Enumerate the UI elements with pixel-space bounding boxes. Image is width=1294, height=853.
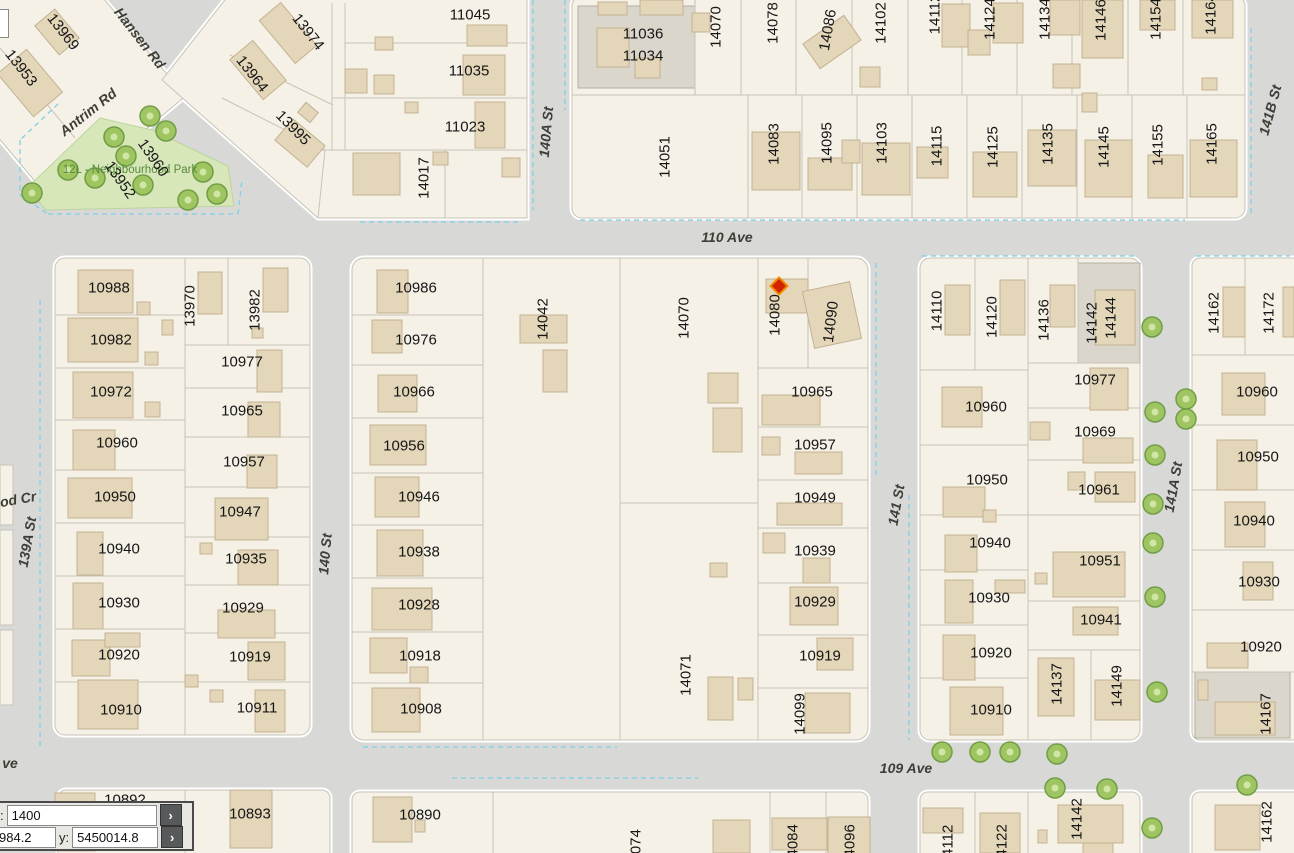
parcel-label: 14120 — [984, 296, 1001, 338]
building — [1082, 93, 1097, 112]
parcel-label: 10919 — [799, 648, 841, 665]
tree-icon — [147, 113, 154, 120]
parcel-label: 14070 — [676, 297, 693, 339]
building — [1030, 422, 1050, 440]
parcel-label: 11023 — [445, 119, 486, 136]
parcel-label: 10960 — [965, 399, 1007, 416]
building — [1050, 285, 1075, 327]
parcel-label: 11036 — [623, 26, 664, 43]
parcel-label: 10956 — [383, 438, 425, 455]
parcel-label: 10918 — [399, 648, 441, 665]
building — [945, 285, 970, 335]
parcel-label: 10965 — [221, 403, 263, 420]
parcel-label: 10946 — [398, 489, 440, 506]
parcel-label: 14103 — [874, 122, 891, 164]
parcel-label: 10935 — [225, 551, 267, 568]
street-label: 141 St — [885, 482, 908, 527]
tree-icon — [185, 197, 192, 204]
street-label: 141B St — [1256, 82, 1285, 137]
parcel-label: 10920 — [98, 647, 140, 664]
parcel-label: 10938 — [398, 544, 440, 561]
parcel-label: 10957 — [794, 437, 836, 454]
parcel-label: 10961 — [1078, 482, 1120, 499]
tree-icon — [939, 749, 946, 756]
tree-icon — [1149, 324, 1156, 331]
building — [433, 152, 448, 165]
parcel-label: 14095 — [819, 122, 836, 164]
building — [708, 373, 738, 403]
parcel-label: 10957 — [223, 454, 265, 471]
parcel-label: 14112 — [940, 825, 957, 853]
tree-icon — [1150, 501, 1157, 508]
parcel-label: 14145 — [1096, 126, 1113, 168]
building — [598, 2, 627, 15]
building — [543, 350, 567, 392]
scale-go-button[interactable]: › — [160, 804, 182, 826]
partial-ui-box — [0, 9, 9, 38]
parcel-label: 14142 — [1069, 798, 1086, 840]
edge-parcel — [0, 530, 13, 625]
building — [943, 487, 985, 517]
building — [375, 37, 393, 50]
parcel-label: 14017 — [416, 157, 433, 199]
parcel-label: 10950 — [966, 472, 1008, 489]
tree-icon — [1149, 825, 1156, 832]
tree-icon — [140, 182, 147, 189]
edge-parcel — [0, 630, 13, 705]
parcel-label: 14154 — [1148, 0, 1165, 40]
parcel-label: 10941 — [1080, 612, 1122, 629]
parcel-label: 10929 — [222, 600, 264, 617]
building — [763, 533, 785, 553]
street-label: 141A St — [1161, 459, 1186, 513]
parcel-label: 14155 — [1150, 124, 1167, 166]
tree-icon — [1152, 594, 1159, 601]
parcel-label: 10929 — [794, 594, 836, 611]
parcel-label: 10910 — [970, 702, 1012, 719]
parcel-label: 10930 — [98, 595, 140, 612]
parcel-label: 10977 — [1074, 372, 1116, 389]
parcel-label: 14137 — [1049, 663, 1066, 705]
building — [405, 102, 418, 113]
parcel-label: 13970 — [182, 285, 199, 327]
building — [137, 302, 150, 315]
scale-input[interactable] — [7, 805, 157, 826]
parcel-label: 14071 — [678, 654, 695, 696]
parcel-label: 11034 — [623, 48, 664, 65]
tree-icon — [1150, 540, 1157, 547]
street-label: 140A St — [536, 105, 556, 158]
parcel-label: 14124 — [982, 0, 999, 40]
parcel-label: 10966 — [393, 384, 435, 401]
building — [1283, 287, 1294, 337]
parcel-label: 10951 — [1079, 553, 1121, 570]
building — [1198, 680, 1208, 700]
scale-label: : — [0, 808, 4, 823]
building — [162, 320, 173, 335]
street-label: 139A St — [15, 514, 40, 568]
building — [708, 677, 733, 720]
parcel-label: 14172 — [1261, 292, 1278, 334]
parcel-label: 10965 — [791, 384, 833, 401]
building — [842, 140, 860, 163]
parcel-label: 14162 — [1206, 292, 1223, 334]
building — [1215, 805, 1260, 850]
coordinate-panel: : › y: › — [0, 801, 194, 851]
scale-row: : › — [0, 804, 190, 826]
parcel-label: 14149 — [1109, 665, 1126, 707]
parcel-label: 10939 — [794, 543, 836, 560]
building — [640, 0, 683, 15]
tree-icon — [1152, 409, 1159, 416]
building — [198, 272, 222, 314]
building — [210, 690, 223, 702]
tree-icon — [977, 749, 984, 756]
parcel-label: 10947 — [219, 504, 261, 521]
building — [345, 69, 367, 93]
parcel-label: 14125 — [985, 126, 1002, 168]
parcel-label: 14080 — [767, 294, 784, 336]
parcel-label: 14042 — [535, 298, 552, 340]
parcel-label: 14099 — [792, 693, 809, 735]
tree-icon — [111, 134, 118, 141]
parcel-label: 14070 — [708, 6, 725, 48]
building — [795, 452, 842, 474]
building — [713, 820, 750, 853]
parcel-label: 14110 — [929, 291, 946, 332]
parcel-label: 14146 — [1093, 0, 1110, 41]
parcel-map[interactable]: Hansen RdAntrim Rd110 Ave109 Aveveod Cr1… — [0, 0, 1294, 853]
parcel-label: 10950 — [94, 489, 136, 506]
building — [1050, 0, 1080, 35]
parcel-label: 10911 — [237, 700, 278, 717]
x-coordinate-input[interactable] — [0, 827, 56, 848]
parcel-label: 14122 — [994, 824, 1011, 853]
building — [1000, 280, 1025, 335]
building — [353, 153, 400, 195]
parcel-label: 10920 — [970, 645, 1012, 662]
building — [762, 437, 780, 455]
parcel-label: 14112 — [927, 0, 944, 34]
park-label: 12L - Neighbourhood Park — [63, 164, 198, 176]
parcel-label: 10920 — [1240, 639, 1282, 656]
building — [467, 25, 507, 46]
parcel-label: 14115 — [929, 126, 946, 167]
parcel-label: 10969 — [1074, 424, 1116, 441]
parcel-label: 10893 — [229, 806, 271, 823]
building — [1223, 287, 1245, 337]
building — [145, 352, 158, 365]
parcel-label: 10930 — [1238, 574, 1280, 591]
tree-icon — [1007, 749, 1014, 756]
parcel-label: 10928 — [398, 597, 440, 614]
building — [502, 158, 520, 177]
building — [942, 4, 970, 47]
tree-icon — [29, 190, 36, 197]
tree-icon — [1183, 396, 1190, 403]
building — [713, 408, 742, 452]
parcel-label: 10940 — [98, 541, 140, 558]
building — [1038, 830, 1047, 843]
map-canvas[interactable]: Hansen RdAntrim Rd110 Ave109 Aveveod Cr1… — [0, 0, 1294, 853]
parcel-label: 14144 — [1103, 297, 1120, 339]
parcel-label: 14051 — [657, 136, 674, 178]
tree-icon — [1104, 786, 1111, 793]
building — [145, 402, 160, 417]
tree-icon — [1152, 452, 1159, 459]
building — [860, 67, 880, 87]
tree-icon — [200, 169, 207, 176]
parcel-label: 10976 — [395, 332, 437, 349]
coordinate-go-button[interactable]: › — [161, 826, 183, 848]
parcel-label: 13982 — [247, 289, 264, 331]
parcel-label: 14134 — [1037, 0, 1054, 40]
parcel-label: 10960 — [1236, 384, 1278, 401]
building — [1083, 438, 1133, 463]
parcel-label: 14135 — [1040, 123, 1057, 165]
tree-icon — [1244, 782, 1251, 789]
coordinate-row: y: › — [0, 826, 190, 848]
parcel-label: 14096 — [842, 824, 859, 853]
parcel-label: 10977 — [221, 354, 263, 371]
building — [185, 675, 198, 687]
building — [983, 510, 996, 522]
parcel-label: 10949 — [794, 490, 836, 507]
building — [738, 678, 753, 700]
building — [263, 268, 288, 312]
parcel-label: 14083 — [766, 123, 783, 165]
tree-icon — [1052, 785, 1059, 792]
parcel-label: 10988 — [88, 280, 130, 297]
parcel-label: 10982 — [90, 332, 132, 349]
building — [200, 543, 212, 554]
parcel-label: 10940 — [1233, 513, 1275, 530]
street-label: 110 Ave — [701, 229, 753, 245]
building — [1083, 843, 1113, 853]
parcel-label: 10908 — [400, 701, 442, 718]
street-label: 140 St — [315, 531, 335, 575]
building — [710, 563, 727, 577]
tree-icon — [163, 128, 170, 135]
building — [1035, 573, 1047, 584]
parcel-label: 10910 — [100, 702, 142, 719]
building — [410, 667, 428, 683]
parcel-label: 14078 — [765, 2, 782, 44]
tree-icon — [123, 153, 130, 160]
parcel-label: 10940 — [969, 535, 1011, 552]
parcel-label: 10960 — [96, 435, 138, 452]
tree-icon — [214, 191, 221, 198]
building — [805, 693, 850, 733]
parcel-label: 14167 — [1258, 693, 1275, 735]
tree-icon — [1154, 689, 1161, 696]
parcel-label: 11035 — [449, 63, 490, 80]
parcel-label: 10986 — [395, 280, 437, 297]
parcel-label: 14165 — [1204, 123, 1221, 165]
parcel-label: 14074 — [628, 829, 645, 853]
building — [1202, 78, 1217, 90]
street-label: ve — [2, 755, 18, 771]
parcel-label: 10950 — [1237, 449, 1279, 466]
tree-icon — [1054, 751, 1061, 758]
street-label: 109 Ave — [880, 760, 933, 776]
parcel-label: 11045 — [450, 7, 491, 24]
parcel-label: 14136 — [1036, 299, 1053, 341]
y-coordinate-input[interactable] — [72, 827, 158, 848]
parcel-label: 10919 — [229, 649, 271, 666]
dashed-boundary — [238, 180, 242, 214]
building — [1053, 64, 1080, 88]
parcel-label: 10930 — [968, 590, 1010, 607]
tree-icon — [1183, 416, 1190, 423]
y-label: y: — [59, 830, 69, 845]
parcel-label: 14162 — [1259, 801, 1276, 843]
building — [803, 558, 830, 583]
parcel-label: 14142 — [1084, 302, 1101, 344]
building — [105, 633, 140, 647]
parcel-label: 10890 — [399, 807, 441, 824]
building — [374, 75, 394, 94]
parcel-label: 14164 — [1203, 0, 1220, 35]
parcel-label: 10972 — [90, 384, 132, 401]
parcel-label: 14084 — [785, 824, 802, 853]
parcel-label: 14102 — [873, 2, 890, 44]
